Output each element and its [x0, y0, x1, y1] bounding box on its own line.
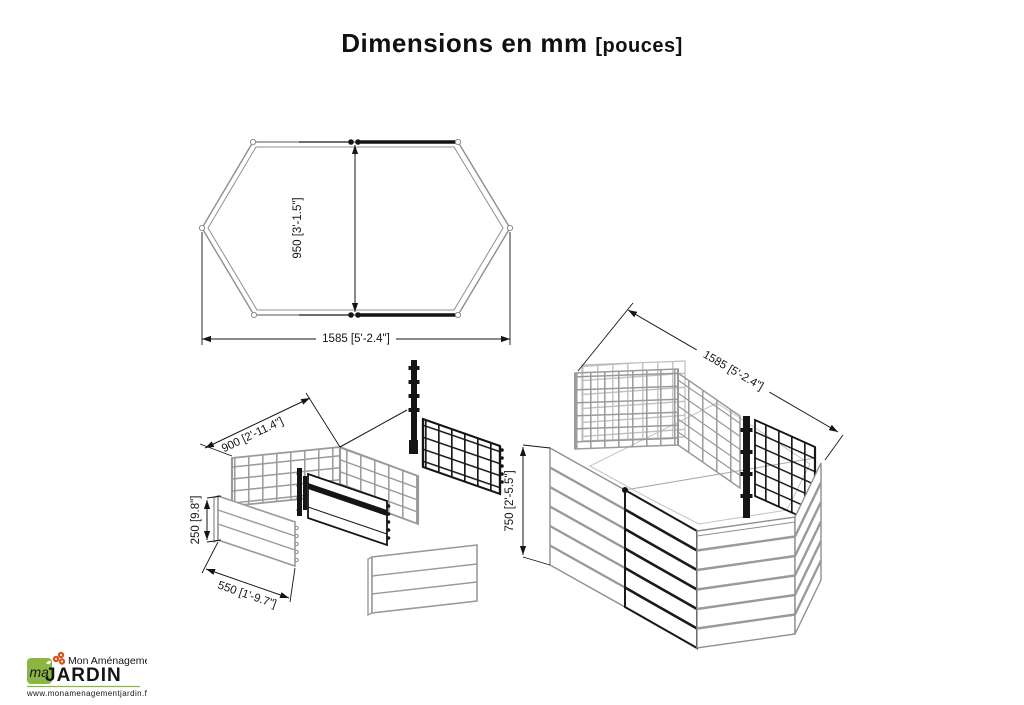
- top-view-drawing: 950 [3'-1.5"] 1585 [5'-2.4"]: [185, 118, 525, 358]
- trellis-panel-new: [423, 419, 500, 494]
- dim-250-label: 250 [9.8"]: [190, 496, 202, 545]
- dimension-sheet: Dimensions en mm [pouces] 950 [3'-1.5"] …: [0, 0, 1024, 705]
- dim-950-label: 950 [3'-1.5"]: [292, 197, 304, 258]
- page-title: Dimensions en mm [pouces]: [0, 28, 1024, 59]
- wall-front-right: [697, 517, 795, 648]
- solid-panel-right: [368, 545, 477, 615]
- brand-website: www.monamenagementjardin.fr: [27, 689, 147, 698]
- page-title-bracket: [pouces]: [595, 35, 682, 57]
- trellis-divider-left: [575, 369, 678, 449]
- dim-1585-label: 1585 [5'-2.4"]: [322, 333, 390, 345]
- brand-logo: ma Mon Aménagement JARDIN www.monamenage…: [27, 643, 147, 701]
- brand-name-main: JARDIN: [45, 665, 122, 686]
- page-title-main: Dimensions en mm: [341, 28, 587, 58]
- hexagon-outer: [202, 142, 510, 315]
- hinge-leader-line: [340, 410, 407, 447]
- clover-icon: [54, 653, 64, 664]
- dim-750-label: 750 [2'-5.5"]: [504, 470, 516, 531]
- dim-550-label: 550 [1'-9.7"]: [216, 580, 278, 611]
- hinge-strip: [409, 360, 420, 454]
- dim-1585-assembled-label: 1585 [5'-2.4"]: [701, 349, 766, 393]
- exploded-view-drawing: 900 [2'-11.4"] 250 [9.8"] 550 [1'-9.7"]: [178, 352, 528, 622]
- dim-1585-assembled: 1585 [5'-2.4"]: [693, 342, 774, 398]
- assembled-view-drawing: 1585 [5'-2.4"] 750 [2'-5.5"]: [492, 288, 992, 678]
- solid-panel-left: [214, 496, 298, 566]
- dim-900-label: 900 [2'-11.4"]: [220, 415, 285, 455]
